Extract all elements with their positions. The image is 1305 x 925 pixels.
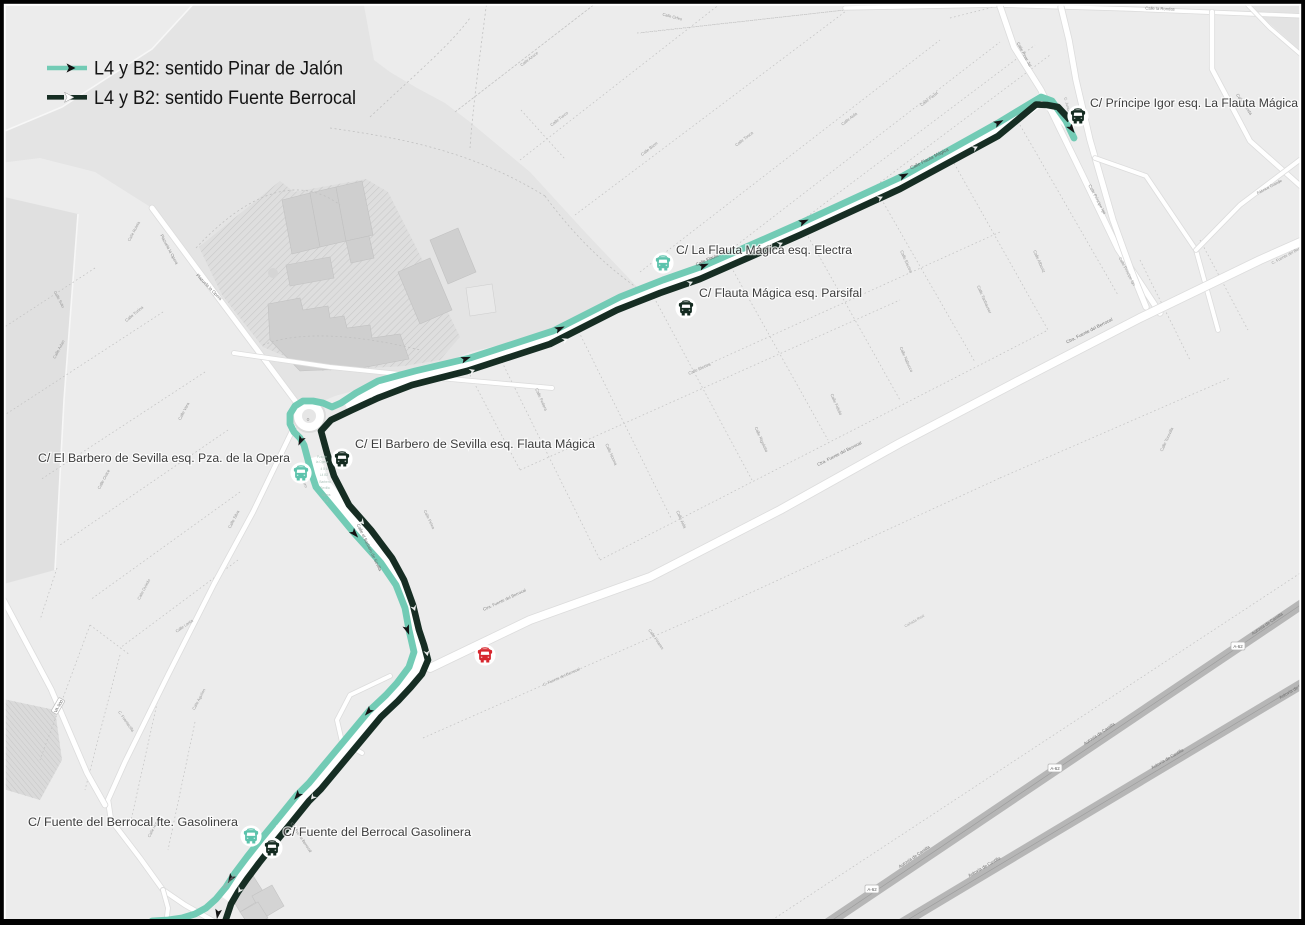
svg-text:A-62: A-62 bbox=[1233, 644, 1243, 649]
svg-text:Pza de: Pza de bbox=[317, 455, 327, 459]
svg-text:la Opera: la Opera bbox=[316, 460, 328, 464]
svg-text:C/ Flauta Mágica esq. Parsifal: C/ Flauta Mágica esq. Parsifal bbox=[699, 286, 862, 300]
svg-text:C/ La Flauta Mágica esq. Elect: C/ La Flauta Mágica esq. Electra bbox=[676, 243, 852, 257]
svg-text:7 8: 7 8 bbox=[324, 499, 329, 503]
svg-text:A-62: A-62 bbox=[867, 887, 877, 892]
svg-text:C/ El Barbero de Sevilla esq.: C/ El Barbero de Sevilla esq. Pza. de la… bbox=[38, 451, 290, 465]
svg-text:A-62: A-62 bbox=[1050, 766, 1060, 771]
svg-text:Barbero: Barbero bbox=[319, 480, 331, 484]
svg-text:C/ Fuente del Berrocal Gasolin: C/ Fuente del Berrocal Gasolinera bbox=[283, 825, 471, 839]
svg-text:4 5 6: 4 5 6 bbox=[320, 467, 327, 471]
svg-text:L4 B2: L4 B2 bbox=[320, 473, 329, 477]
svg-text:Calle la Rondas: Calle la Rondas bbox=[1145, 5, 1175, 11]
svg-text:Sevilla: Sevilla bbox=[320, 486, 330, 490]
svg-text:Opera: Opera bbox=[322, 493, 331, 497]
svg-text:L4 y B2: sentido Pinar de Jaló: L4 y B2: sentido Pinar de Jalón bbox=[94, 59, 343, 80]
svg-text:C/ El Barbero de Sevilla esq.: C/ El Barbero de Sevilla esq. Flauta Mág… bbox=[355, 437, 595, 451]
svg-text:C/ Príncipe Igor esq. La Flaut: C/ Príncipe Igor esq. La Flauta Mágica bbox=[1090, 96, 1298, 110]
svg-text:o: o bbox=[307, 417, 310, 423]
svg-text:L4 y B2: sentido Fuente Berroc: L4 y B2: sentido Fuente Berrocal bbox=[94, 88, 356, 109]
svg-text:C/ Fuente del Berrocal fte. Ga: C/ Fuente del Berrocal fte. Gasolinera bbox=[28, 815, 238, 829]
